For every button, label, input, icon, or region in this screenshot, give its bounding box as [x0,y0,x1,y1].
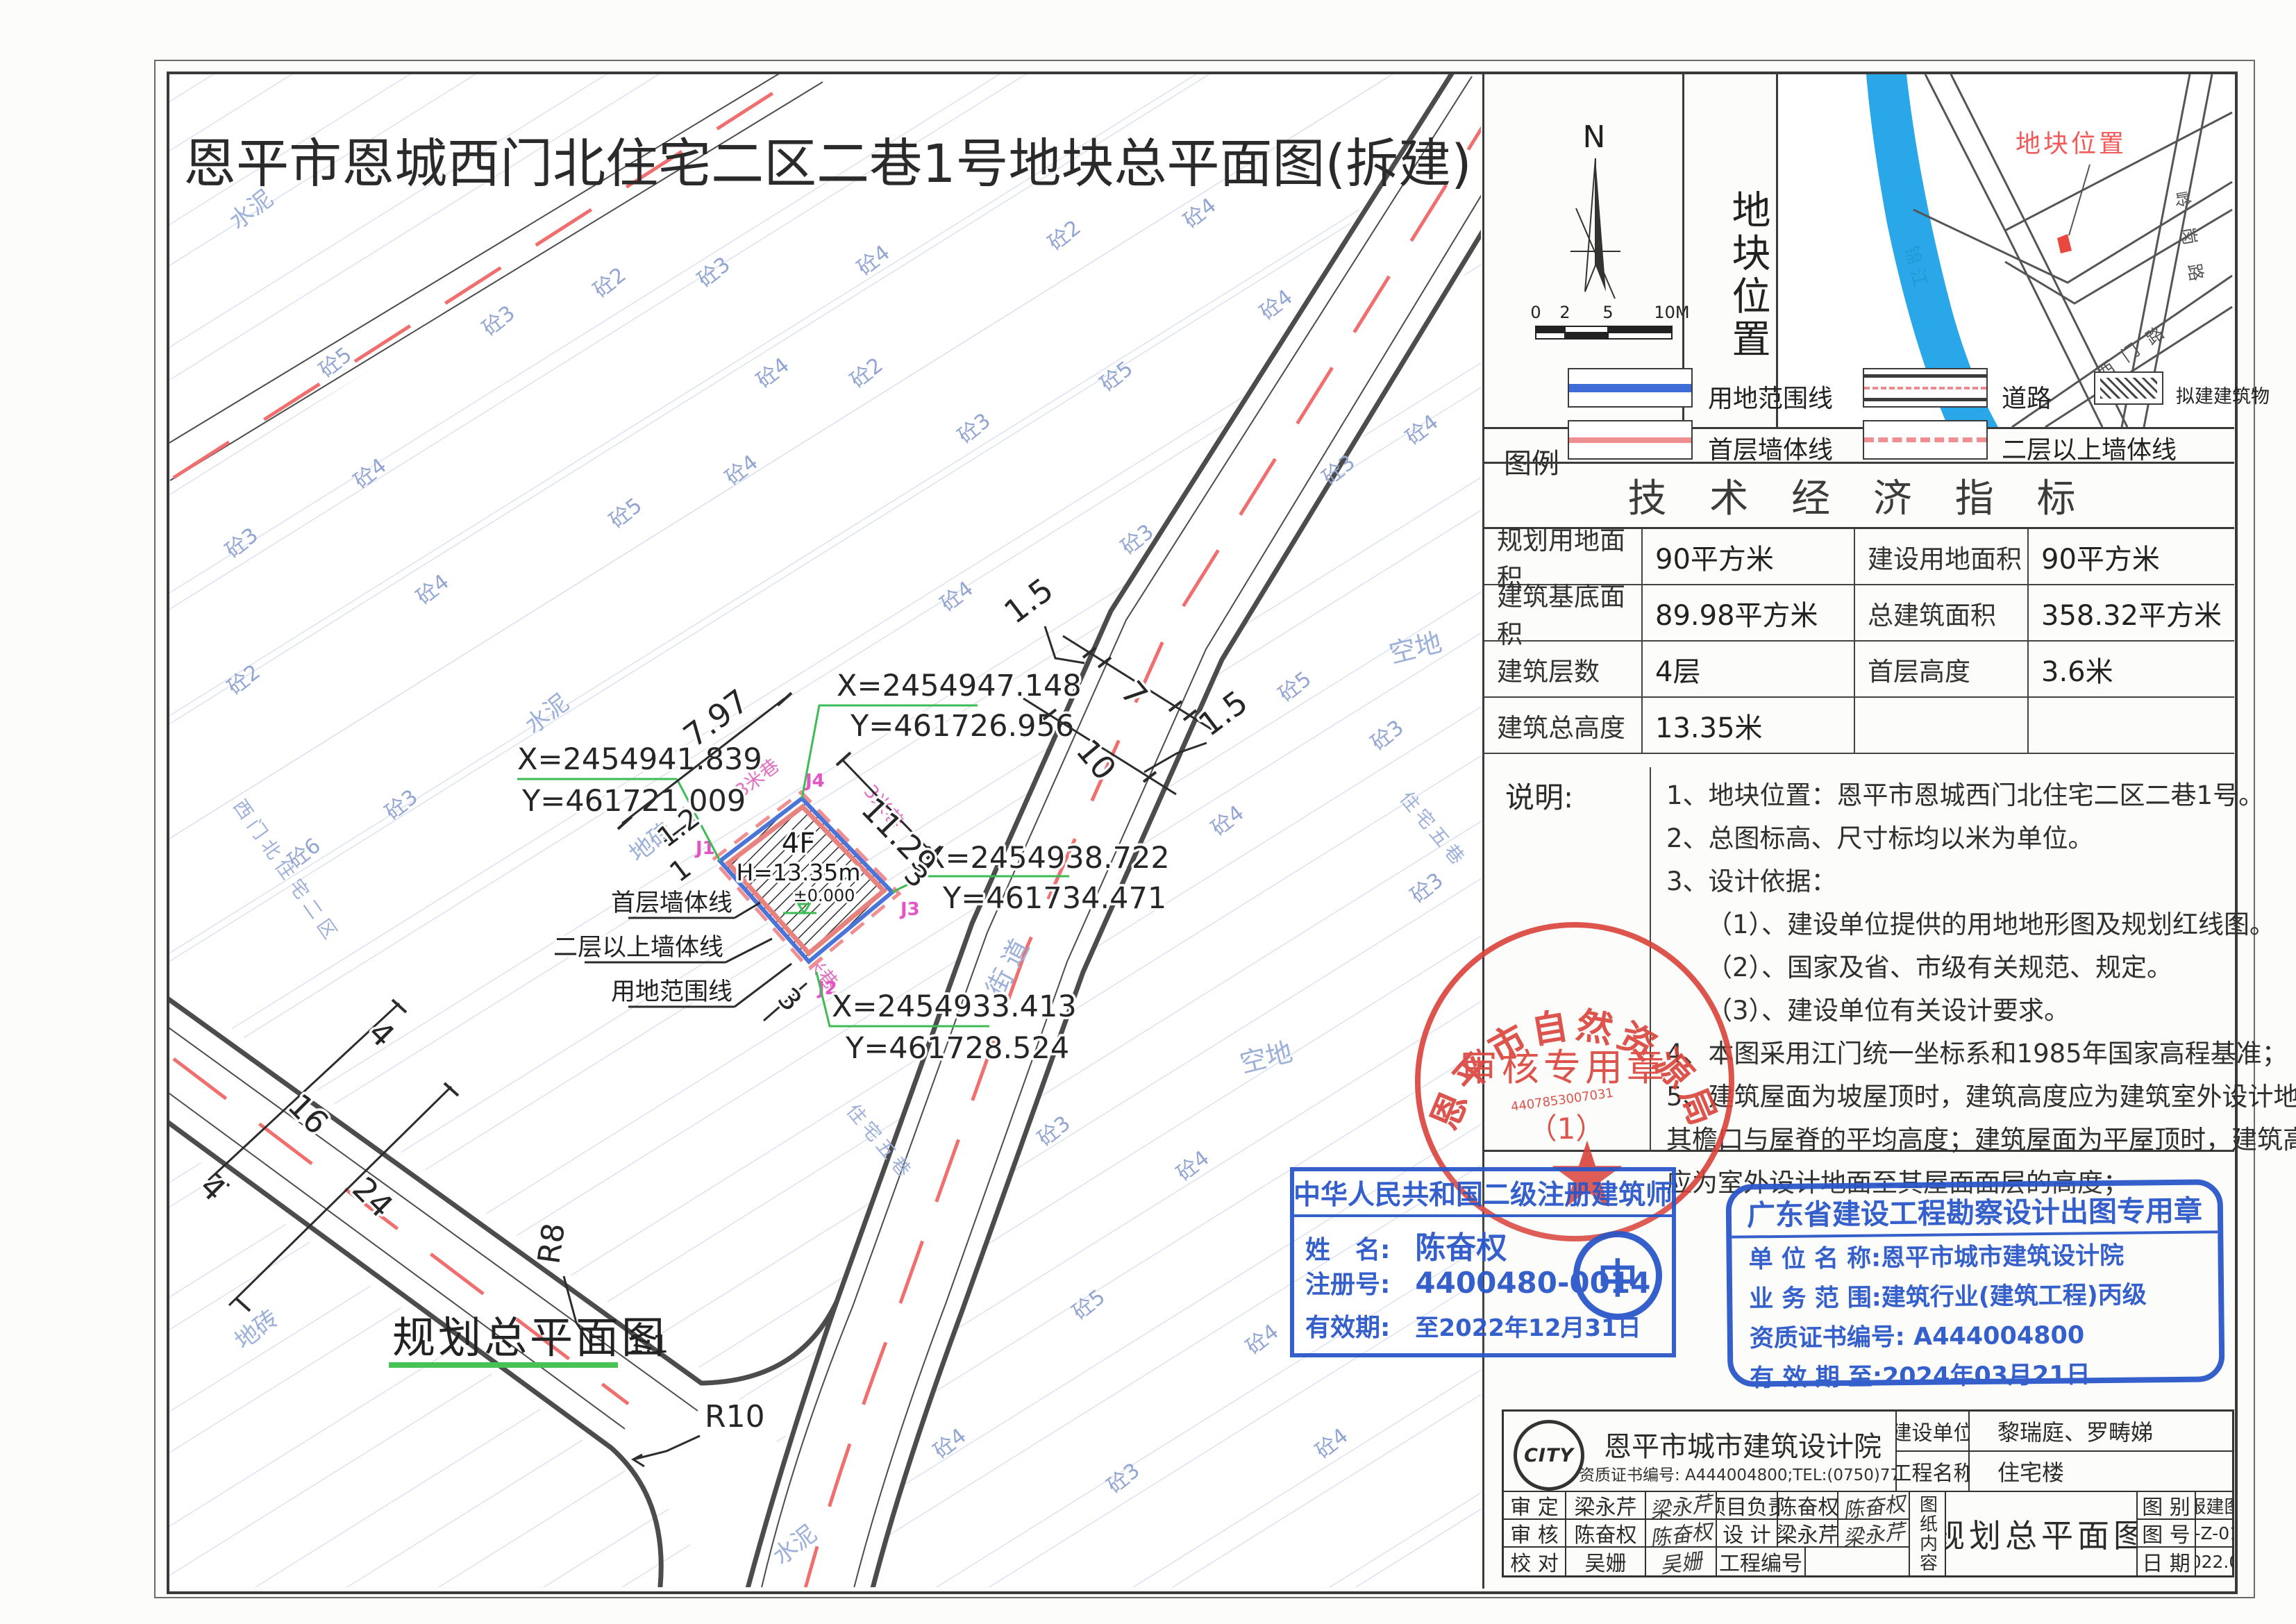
svg-text:X=2454947.148: X=2454947.148 [837,669,1082,703]
architect-stamp: 中华人民共和国二级注册建筑师 姓 名: 陈奋权 注册号: 4400480-001… [1290,1167,1676,1357]
table-cell: 90平方米 [1643,529,1855,585]
gd-survey-stamp: 广东省建设工程勘察设计出图专用章 单 位 名 称:恩平市城市建筑设计院 业 务 … [1725,1179,2224,1387]
signature: 梁永芹 [1841,1520,1907,1548]
sheet-type-value: 报建图 [2196,1492,2234,1520]
note-line: 4、本图采用江门统一坐标系和1985年国家高程基准； [1666,1032,2219,1075]
table-cell: 总建筑面积 [1855,585,2029,642]
building-level: ±0.000 [794,886,855,905]
signature: 陈奋权 [1841,1492,1907,1520]
legend-symbol-upper-wall [1863,420,1988,460]
legend-item-label: 二层以上墙体线 [2002,430,2177,466]
notes-title: 说明: [1505,774,1573,817]
sheet-type-label: 图 别 [2138,1492,2196,1520]
designer-name: 梁永芹 [1778,1520,1838,1548]
lead-name: 陈奋权 [1778,1492,1838,1520]
table-cell [1855,698,2029,754]
signature: 梁永芹 [1648,1492,1714,1520]
svg-text:1:1: 1:1 [628,1330,669,1359]
company-logo: CITY [1514,1420,1584,1491]
project-label: 工程名称 [1897,1452,1970,1492]
svg-text:R8: R8 [531,1221,572,1266]
location-section-label: 地块位置 [1693,130,1776,421]
project-value: 住宅楼 [1970,1452,2234,1492]
date-label: 日 期 [2138,1548,2196,1575]
table-cell: 89.98平方米 [1643,585,1855,642]
table-cell: 358.32平方米 [2029,585,2234,642]
note-line: （3）、建设单位有关设计要求。 [1666,989,2219,1032]
legend-item-label: 用地范围线 [1708,378,1833,415]
legend-symbol-first-floor-wall [1568,420,1693,460]
table-cell: 建筑总高度 [1484,698,1643,754]
svg-text:R10: R10 [705,1399,765,1434]
table-cell: 90平方米 [2029,529,2234,585]
legend-item-label: 道路 [2002,378,2052,415]
drawing-sheet: 砼5 砼3 砼2 砼3 砼4 砼2 砼4 砼4 砼3 砼4 砼5 砼4 砼5 砼… [0,0,2296,1624]
approver-label: 审 定 [1504,1492,1566,1520]
company-name: 恩平市城市建筑设计院 [1586,1424,1897,1464]
svg-text:J3: J3 [899,899,920,920]
svg-text:首层墙体线: 首层墙体线 [611,889,732,917]
table-cell: 3.6米 [2029,642,2234,698]
stamp-serial: 4407853007031 [1510,1086,1614,1115]
gd-stamp-line: 资质证书编号: A444004800 [1750,1316,2219,1357]
svg-text:X=2454941.839: X=2454941.839 [517,742,762,777]
stamp-line1: 审核专用章 [1460,1046,1668,1089]
note-line: 1、地块位置：恩平市恩城西门北住宅二区二巷1号。 [1666,774,2219,817]
name-label: 姓 名: [1305,1236,1390,1264]
checker-label: 审 核 [1504,1520,1566,1548]
proof-name: 吴姗 [1566,1548,1646,1575]
table-cell: 建筑层数 [1484,642,1643,698]
table-cell: 4层 [1643,642,1855,698]
checker-name: 陈奋权 [1566,1520,1646,1548]
plan-caption: 规划总平面图 1:1 [389,1312,669,1368]
svg-text:X=2454938.722: X=2454938.722 [925,841,1170,876]
note-line: 2、总图标高、尺寸标均以米为单位。 [1666,817,2219,860]
svg-text:Y=461728.524: Y=461728.524 [845,1031,1069,1066]
gd-stamp-line: 单 位 名 称:恩平市城市建筑设计院 [1748,1237,2218,1278]
table-cell [2029,698,2234,754]
client-label: 建设单位 [1897,1412,1970,1452]
svg-text:二层以上墙体线: 二层以上墙体线 [553,934,723,962]
building-height: H=13.35m [736,859,860,886]
architect-stamp-title: 中华人民共和国二级注册建筑师 [1294,1171,1672,1217]
content-label: 图纸内容 [1915,1495,1941,1573]
svg-text:Y=461726.956: Y=461726.956 [850,709,1074,744]
legend-symbol-boundary [1568,368,1693,408]
sheet-no-label: 图 号 [2138,1520,2196,1548]
client-value: 黎瑞庭、罗畴娣 [1970,1412,2234,1452]
project-no-value [1806,1548,1910,1575]
svg-text:J1: J1 [694,838,715,859]
sheet-title: 恩平市恩城西门北住宅二区二巷1号地块总平面图(拆建) [183,133,1472,194]
project-no-label: 工程编号 [1717,1548,1806,1575]
legend-item-label: 拟建建筑物 [2176,381,2270,408]
signature: 吴姗 [1659,1548,1704,1575]
company-cert: 资质证书编号: A444004800;TEL:(0750)7722234 [1579,1462,1897,1485]
table-cell: 建设用地面积 [1855,529,2029,585]
gd-stamp-line: 有 效 期 至:2024年03月21日 [1750,1356,2219,1396]
svg-text:规划总平面图: 规划总平面图 [392,1312,667,1363]
sheet-no-value: J-Z-01 [2196,1520,2234,1548]
signature: 陈奋权 [1648,1520,1714,1548]
table-cell: 13.35米 [1643,698,1855,754]
legend-item-label: 首层墙体线 [1708,430,1833,466]
indicators-table: 规划用地面积 90平方米 建设用地面积 90平方米 建筑基底面积 89.98平方… [1484,529,2234,755]
svg-text:X=2454933.413: X=2454933.413 [832,989,1077,1024]
gd-stamp-title: 广东省建设工程勘察设计出图专用章 [1732,1184,2218,1238]
legend-symbol-road [1863,368,1988,408]
divider [1776,74,1778,427]
title-block: CITY 恩平市城市建筑设计院 资质证书编号: A444004800;TEL:(… [1502,1409,2234,1577]
approver-name: 梁永芹 [1566,1492,1646,1520]
gd-stamp-line: 业 务 范 围:建筑行业(建筑工程)丙级 [1749,1277,2218,1317]
architect-seal-icon: 中 [1573,1231,1662,1320]
proof-label: 校 对 [1504,1548,1566,1575]
table-cell: 建筑基底面积 [1484,585,1643,642]
note-line: 5、建筑屋面为坡屋顶时，建筑高度应为建筑室外设计地面至 [1666,1075,2219,1119]
reg-label: 注册号: [1305,1271,1390,1299]
drawing-content: 规划总平面图 [1946,1492,2138,1575]
lead-label: 项目负责 [1717,1492,1778,1520]
valid-label: 有效期: [1305,1314,1390,1342]
legend-symbol-proposed-building [2094,371,2163,405]
note-line: （1）、建设单位提供的用地地形图及规划红线图。 [1666,903,2219,946]
svg-text:Y=461734.471: Y=461734.471 [942,881,1166,916]
note-line: （2）、国家及省、市级有关规范、规定。 [1666,946,2219,989]
table-cell: 首层高度 [1855,642,2029,698]
designer-label: 设 计 [1717,1520,1778,1548]
architect-name: 陈奋权 [1415,1230,1507,1266]
note-line: 3、设计依据： [1666,860,2219,903]
note-line: 其檐口与屋脊的平均高度；建筑屋面为平屋顶时，建筑高度 [1666,1119,2219,1162]
date-value: 2022.08 [2196,1548,2234,1575]
building-floors: 4F [782,828,815,860]
svg-text:用地范围线: 用地范围线 [611,978,732,1006]
